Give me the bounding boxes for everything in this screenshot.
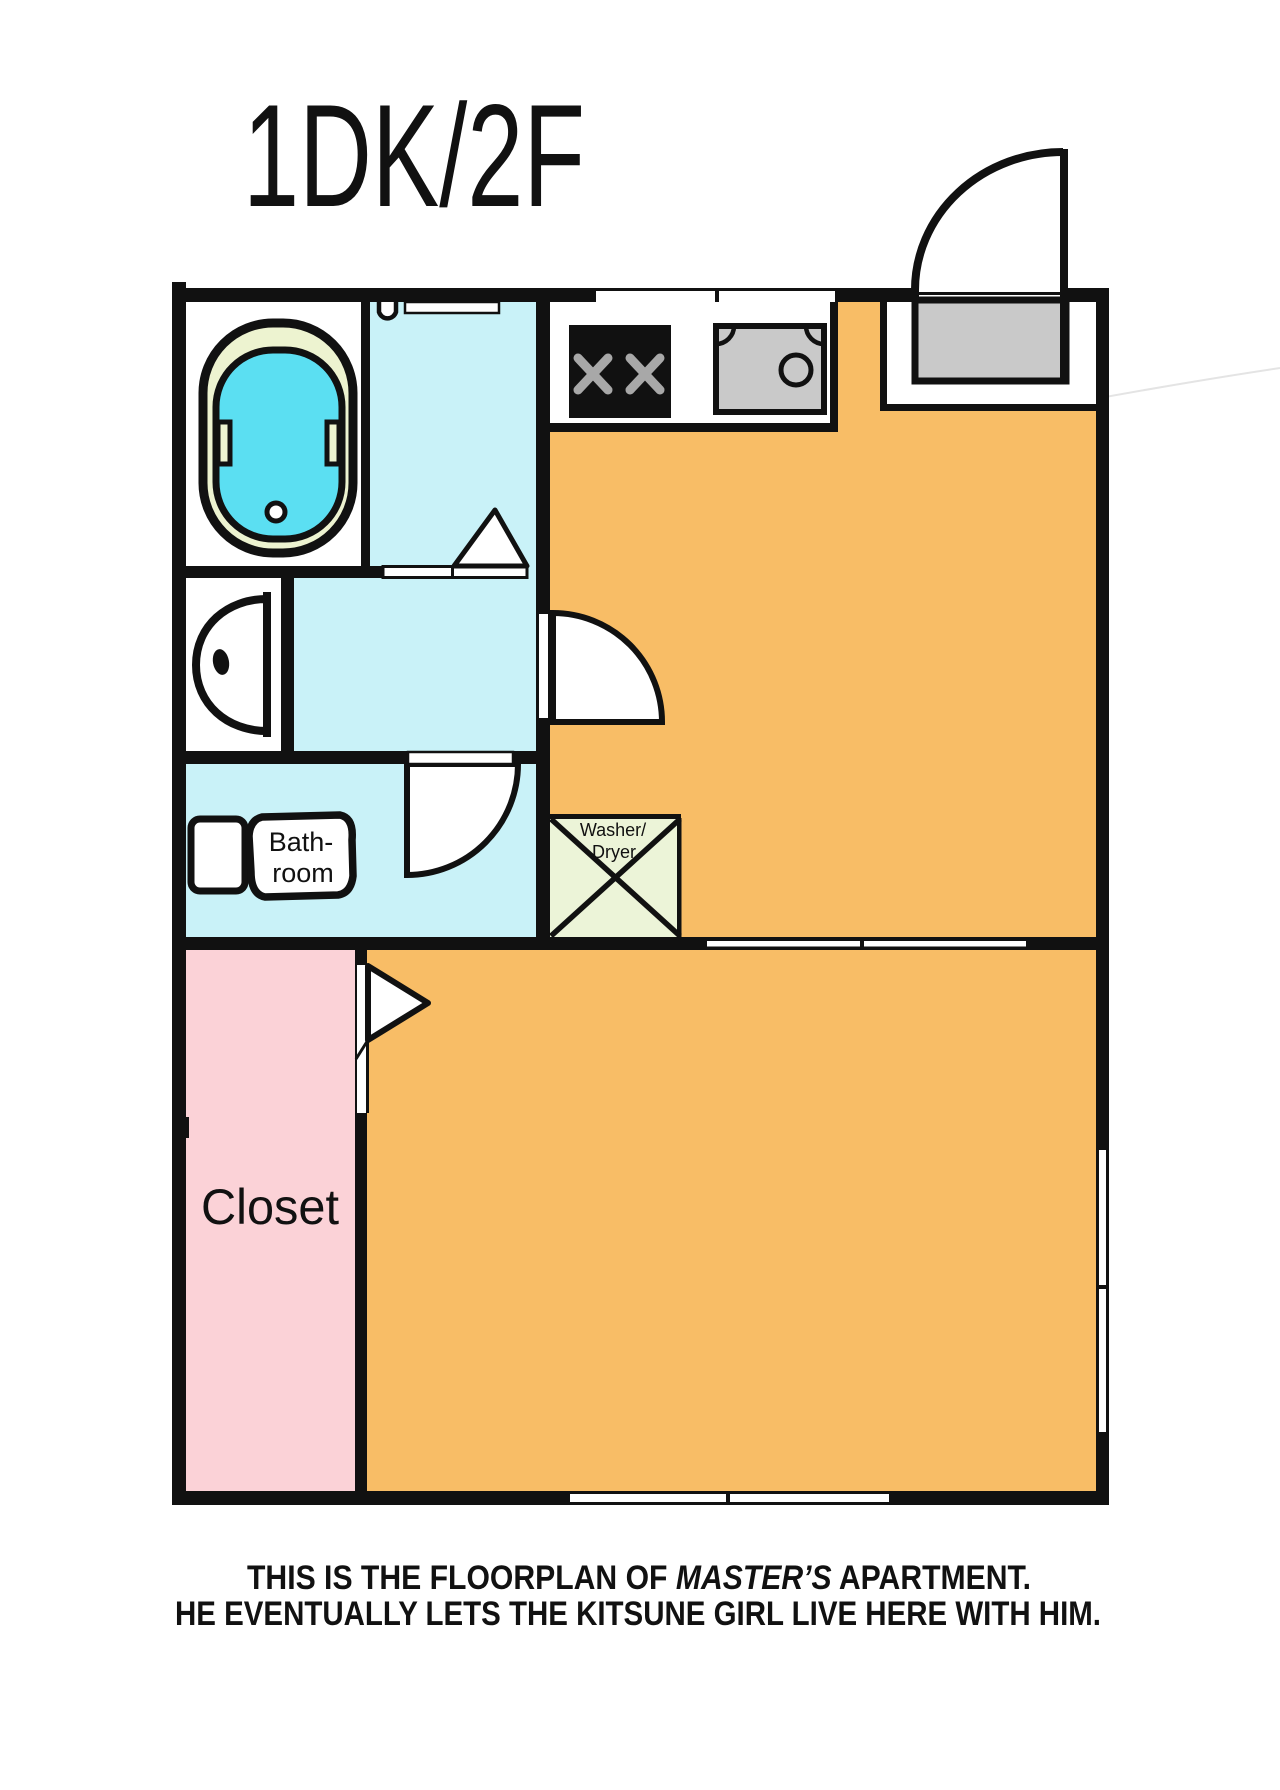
svg-text:1DK/2F: 1DK/2F (243, 74, 585, 237)
svg-text:Dryer: Dryer (592, 842, 636, 862)
svg-text:Washer/: Washer/ (580, 820, 646, 840)
svg-text:Bath-: Bath- (269, 827, 334, 857)
svg-text:THIS IS THE FLOORPLAN OF MASTE: THIS IS THE FLOORPLAN OF MASTER’S APARTM… (247, 1559, 1031, 1597)
svg-text:Closet: Closet (201, 1179, 339, 1235)
svg-text:room: room (272, 858, 334, 888)
svg-text:HE EVENTUALLY LETS THE KITSUNE: HE EVENTUALLY LETS THE KITSUNE GIRL LIVE… (175, 1595, 1101, 1633)
